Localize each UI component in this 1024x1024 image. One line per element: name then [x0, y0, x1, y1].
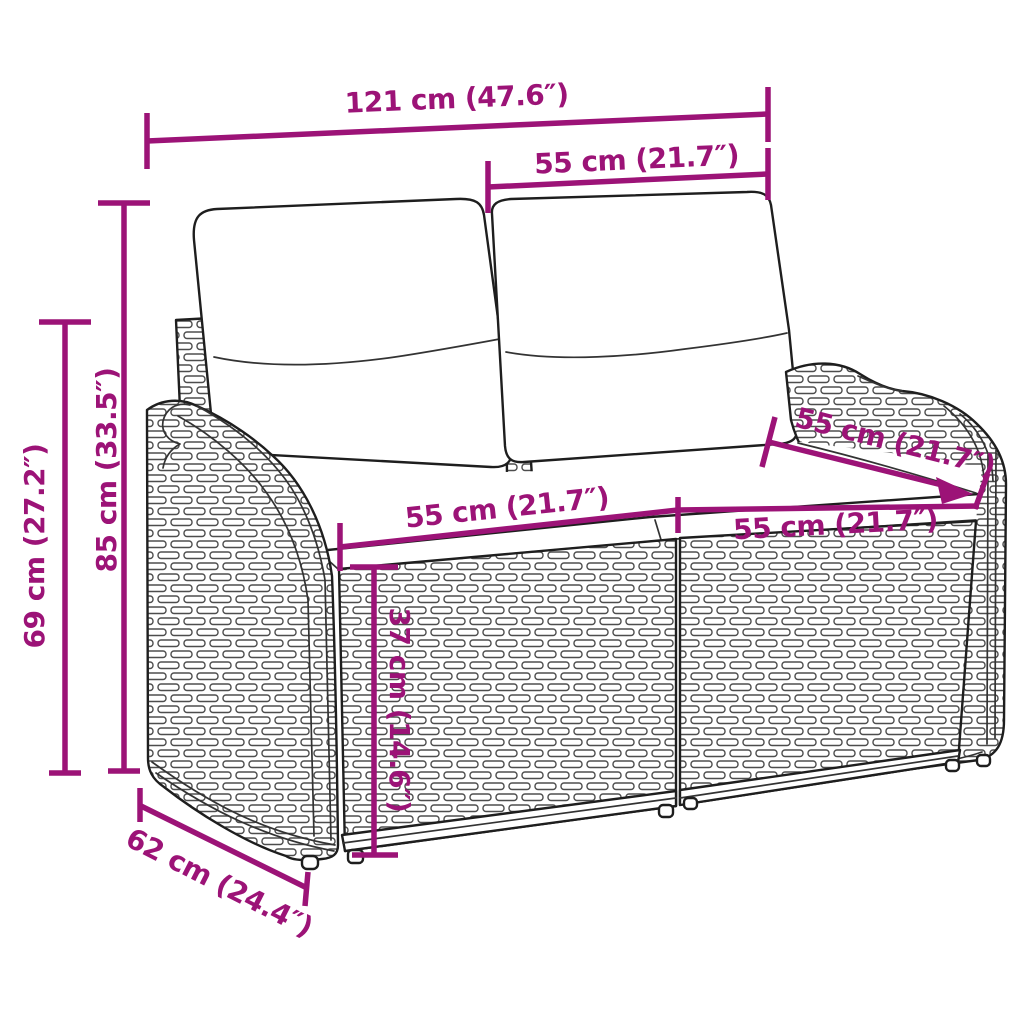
- back-cushion-right: [492, 192, 798, 462]
- dimension-label-overall-width: 121 cm (47.6″): [344, 77, 569, 119]
- dimension-line: [147, 114, 768, 141]
- foot: [946, 760, 959, 771]
- dimension-label-seat-height: 37 cm (14.6″): [383, 608, 416, 813]
- foot: [684, 798, 697, 809]
- dimension-armrest-height: 69 cm (27.2″): [18, 322, 91, 773]
- dimension-label-armrest-height: 69 cm (27.2″): [18, 444, 51, 649]
- bench-dimension-diagram: 121 cm (47.6″) 55 cm (21.7″) 85 cm (33.5…: [0, 0, 1024, 1024]
- seat-front-panel-right: [680, 521, 976, 805]
- dimension-label-total-height: 85 cm (33.5″): [90, 368, 123, 573]
- dimension-total-height: 85 cm (33.5″): [90, 203, 150, 771]
- armrest-edge-band: [987, 455, 988, 744]
- foot: [977, 755, 990, 766]
- foot: [659, 805, 673, 817]
- back-cushion-left: [194, 199, 512, 467]
- dimension-diagram-page: 121 cm (47.6″) 55 cm (21.7″) 85 cm (33.5…: [0, 0, 1024, 1024]
- foot: [302, 856, 318, 869]
- armrest-left: [147, 401, 338, 860]
- dimension-tick: [305, 872, 308, 906]
